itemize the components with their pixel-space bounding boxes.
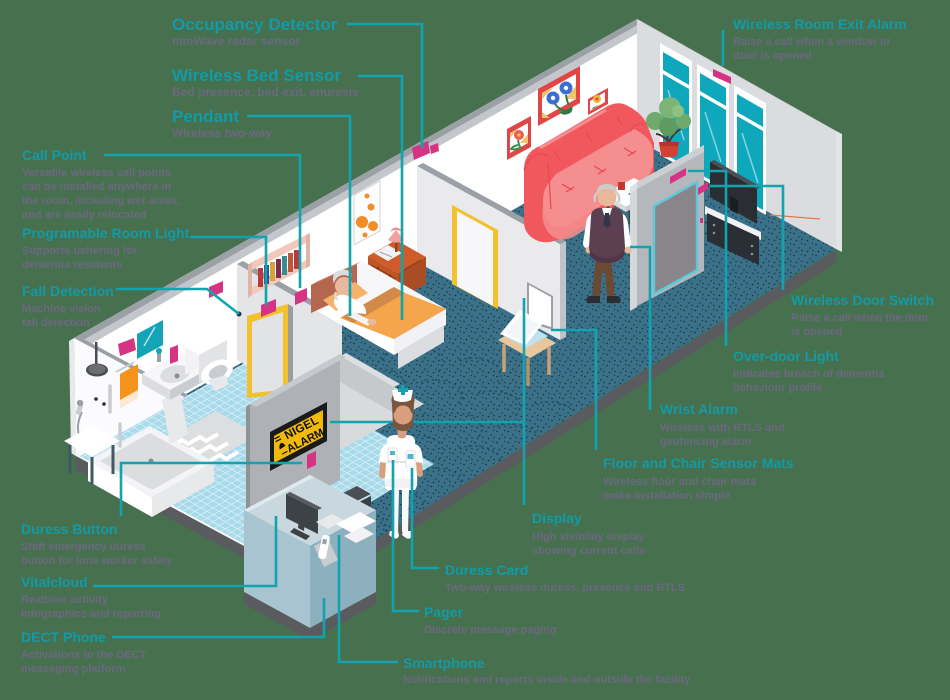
- svg-text:Smartphone: Smartphone: [403, 655, 485, 671]
- svg-text:Two-way wireless duress, prese: Two-way wireless duress, presence and RT…: [445, 582, 685, 594]
- svg-text:Discrete message paging: Discrete message paging: [424, 624, 557, 636]
- svg-text:make installation simple: make installation simple: [603, 490, 730, 502]
- svg-text:Duress Card: Duress Card: [445, 562, 528, 578]
- svg-text:can be installed anywhere in: can be installed anywhere in: [22, 181, 171, 193]
- svg-text:Wrist Alarm: Wrist Alarm: [660, 401, 738, 417]
- svg-text:Occupancy Detector: Occupancy Detector: [172, 15, 338, 34]
- svg-text:the room, including wet areas,: the room, including wet areas,: [22, 195, 180, 207]
- svg-text:High visibility display: High visibility display: [532, 531, 645, 543]
- svg-text:Supports ushering for: Supports ushering for: [22, 245, 138, 257]
- svg-text:Wireless floor and chair mats: Wireless floor and chair mats: [603, 476, 756, 488]
- svg-text:door is opened: door is opened: [733, 50, 812, 62]
- svg-text:Indicates breach of dementia: Indicates breach of dementia: [733, 368, 885, 380]
- svg-text:dementia residents: dementia residents: [22, 259, 122, 271]
- svg-text:Versatile wireless call points: Versatile wireless call points: [22, 167, 171, 179]
- svg-text:Wireless Room Exit Alarm: Wireless Room Exit Alarm: [733, 16, 907, 32]
- svg-text:Staff emergency duress: Staff emergency duress: [21, 541, 146, 553]
- svg-text:mmWave radar sensor: mmWave radar sensor: [172, 34, 301, 48]
- svg-text:DECT Phone: DECT Phone: [21, 629, 106, 645]
- svg-text:Fall Detection: Fall Detection: [22, 283, 114, 299]
- svg-text:fall detection: fall detection: [22, 317, 90, 329]
- svg-text:Pager: Pager: [424, 604, 463, 620]
- svg-text:Programable Room Light: Programable Room Light: [22, 225, 190, 241]
- svg-text:showing current calls: showing current calls: [532, 545, 645, 557]
- svg-text:Pendant: Pendant: [172, 107, 239, 126]
- svg-text:Wireless two-way: Wireless two-way: [172, 126, 272, 140]
- svg-text:Floor and Chair Sensor Mats: Floor and Chair Sensor Mats: [603, 455, 794, 471]
- svg-text:and are easily relocated: and are easily relocated: [22, 209, 147, 221]
- svg-text:button for lone worker safety: button for lone worker safety: [21, 555, 173, 567]
- svg-text:Duress Button: Duress Button: [21, 521, 117, 537]
- svg-text:Raise a call when a window or: Raise a call when a window or: [733, 36, 891, 48]
- svg-text:Raise a call when the door: Raise a call when the door: [791, 312, 930, 324]
- svg-text:Wireless Door Switch: Wireless Door Switch: [791, 292, 934, 308]
- svg-text:Realtime activity: Realtime activity: [21, 594, 109, 606]
- svg-text:Notifications and reports insi: Notifications and reports inside and out…: [403, 674, 691, 686]
- svg-text:Machine vision: Machine vision: [22, 303, 101, 315]
- svg-text:is opened: is opened: [791, 326, 842, 338]
- svg-text:Activations to the DECT: Activations to the DECT: [21, 649, 147, 661]
- svg-text:Over-door Light: Over-door Light: [733, 348, 839, 364]
- svg-text:Call Point: Call Point: [22, 147, 87, 163]
- svg-text:Bed presence, bed exit, enures: Bed presence, bed exit, enuresis: [172, 85, 359, 99]
- svg-text:Wireless Bed Sensor: Wireless Bed Sensor: [172, 66, 341, 85]
- svg-text:Wireless with RTLS and: Wireless with RTLS and: [660, 422, 785, 434]
- svg-text:Vitalcloud: Vitalcloud: [21, 574, 88, 590]
- svg-text:behaviour profile: behaviour profile: [733, 382, 822, 394]
- svg-text:Infographics and reporting: Infographics and reporting: [21, 608, 161, 620]
- svg-text:Display: Display: [532, 510, 582, 526]
- svg-text:geofencing alarm: geofencing alarm: [660, 436, 751, 448]
- svg-text:messaging platform: messaging platform: [21, 663, 126, 675]
